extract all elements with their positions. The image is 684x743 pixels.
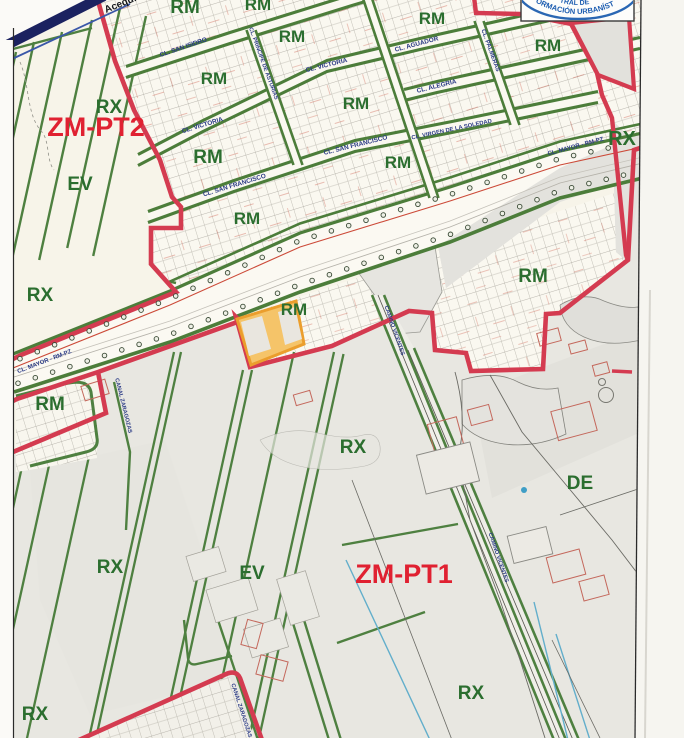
svg-text:RX: RX xyxy=(22,704,49,725)
svg-text:EV: EV xyxy=(67,174,93,195)
svg-text:RX: RX xyxy=(97,557,124,578)
svg-text:RM: RM xyxy=(193,147,223,168)
svg-text:RX: RX xyxy=(27,285,54,306)
svg-text:RM: RM xyxy=(385,153,411,172)
svg-text:RX: RX xyxy=(340,437,367,458)
svg-text:RM: RM xyxy=(535,36,561,55)
svg-text:RM: RM xyxy=(281,300,307,319)
svg-text:RM: RM xyxy=(518,266,548,287)
svg-text:ZM-PT1: ZM-PT1 xyxy=(355,559,453,589)
svg-text:EV: EV xyxy=(239,563,265,584)
svg-text:RM: RM xyxy=(234,209,260,228)
svg-text:RM: RM xyxy=(245,0,271,14)
svg-text:RM: RM xyxy=(343,94,369,113)
svg-text:RX: RX xyxy=(458,683,485,704)
svg-text:RM: RM xyxy=(419,9,445,28)
svg-text:RM: RM xyxy=(170,0,200,18)
svg-text:DE: DE xyxy=(567,473,593,494)
svg-text:RM: RM xyxy=(201,69,227,88)
svg-text:ZM-PT2: ZM-PT2 xyxy=(47,112,145,142)
svg-text:RM: RM xyxy=(35,394,65,415)
svg-text:RX: RX xyxy=(608,128,636,150)
svg-text:RM: RM xyxy=(279,27,305,46)
